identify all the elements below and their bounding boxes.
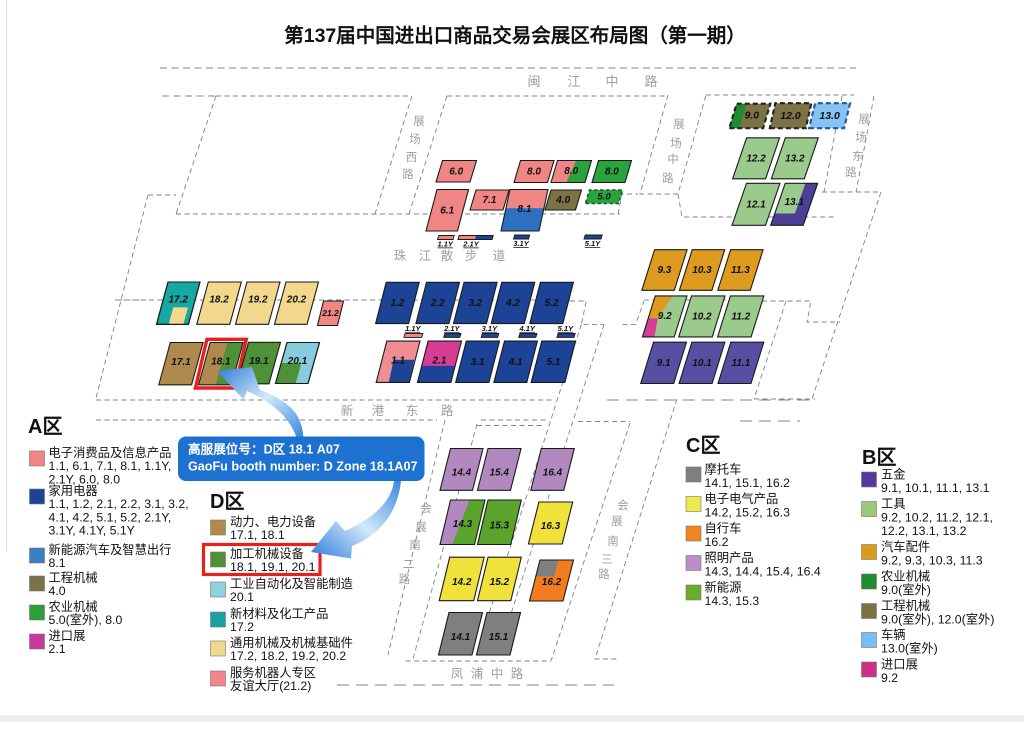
svg-text:1.1, 1.2, 2.1, 2.2, 3.1, 3.2,: 1.1, 1.2, 2.1, 2.2, 3.1, 3.2, [49, 497, 189, 511]
svg-text:13.1: 13.1 [784, 197, 804, 208]
svg-text:路: 路 [598, 567, 610, 581]
svg-text:路: 路 [845, 165, 857, 179]
svg-text:动力、电力设备: 动力、电力设备 [230, 515, 316, 529]
svg-text:汽车配件: 汽车配件 [881, 539, 930, 554]
svg-text:10.2: 10.2 [692, 312, 712, 323]
svg-text:照明产品: 照明产品 [705, 551, 754, 565]
svg-text:B区: B区 [862, 447, 896, 469]
svg-text:15.2: 15.2 [490, 577, 510, 588]
svg-text:4.0: 4.0 [49, 584, 66, 598]
svg-text:南: 南 [409, 538, 421, 552]
svg-text:9.0(室外), 12.0(室外): 9.0(室外), 12.0(室外) [881, 611, 994, 626]
svg-text:7.1: 7.1 [483, 195, 497, 206]
svg-text:6.0: 6.0 [449, 166, 463, 177]
svg-text:18.1: 18.1 [211, 356, 231, 367]
svg-text:9.1, 10.1, 11.1, 13.1: 9.1, 10.1, 11.1, 13.1 [881, 481, 990, 495]
svg-text:17.2, 18.2, 19.2, 20.2: 17.2, 18.2, 19.2, 20.2 [230, 649, 346, 663]
svg-text:14.1, 15.1, 16.2: 14.1, 15.1, 16.2 [705, 476, 791, 490]
svg-text:东: 东 [406, 404, 419, 418]
svg-text:服务机器人专区: 服务机器人专区 [230, 665, 316, 680]
svg-text:车辆: 车辆 [881, 627, 906, 642]
svg-text:路: 路 [662, 171, 674, 185]
svg-text:C区: C区 [686, 435, 720, 457]
svg-text:农业机械: 农业机械 [49, 599, 98, 614]
svg-text:新材料及化工产品: 新材料及化工产品 [230, 606, 328, 621]
svg-text:16.2: 16.2 [542, 577, 562, 588]
svg-text:2.1: 2.1 [432, 355, 447, 366]
svg-text:5.2: 5.2 [545, 298, 559, 309]
svg-text:通用机械及机械基础件: 通用机械及机械基础件 [230, 635, 353, 650]
svg-text:工业自动化及智能制造: 工业自动化及智能制造 [230, 576, 353, 591]
svg-text:10.1: 10.1 [692, 358, 712, 369]
svg-text:5.1Y: 5.1Y [558, 324, 574, 333]
svg-text:20.1: 20.1 [287, 356, 308, 367]
svg-text:12.1: 12.1 [746, 199, 766, 210]
svg-text:西: 西 [406, 152, 418, 164]
svg-text:16.3: 16.3 [541, 521, 561, 532]
svg-text:14.2, 15.2, 16.3: 14.2, 15.2, 16.3 [705, 505, 791, 519]
svg-text:会: 会 [420, 502, 432, 515]
svg-text:16.4: 16.4 [543, 468, 563, 479]
svg-text:2.1: 2.1 [49, 642, 66, 656]
svg-text:3.1Y: 3.1Y [513, 239, 529, 248]
svg-text:20.1: 20.1 [230, 590, 254, 604]
svg-text:场: 场 [409, 132, 421, 146]
svg-text:高服展位号：D区 18.1 A07: 高服展位号：D区 18.1 A07 [188, 442, 340, 457]
svg-text:A区: A区 [28, 416, 62, 438]
svg-text:电子消费品及信息产品: 电子消费品及信息产品 [49, 445, 172, 460]
svg-text:15.3: 15.3 [490, 520, 510, 531]
svg-text:五金: 五金 [881, 467, 906, 482]
svg-text:路: 路 [511, 666, 524, 681]
svg-text:4.1, 4.2, 5.1, 5.2, 2.1Y,: 4.1, 4.2, 5.1, 5.2, 2.1Y, [49, 510, 172, 524]
svg-text:11.1: 11.1 [732, 358, 751, 369]
svg-text:9.2: 9.2 [881, 671, 898, 685]
svg-text:4.1Y: 4.1Y [518, 324, 535, 333]
svg-text:中: 中 [605, 74, 618, 89]
svg-text:江: 江 [567, 74, 580, 89]
svg-text:9.2, 10.2, 11.2, 12.1,: 9.2, 10.2, 11.2, 12.1, [881, 510, 993, 524]
svg-text:13.2: 13.2 [785, 153, 805, 164]
svg-text:新能源汽车及智慧出行: 新能源汽车及智慧出行 [49, 542, 172, 557]
svg-text:中: 中 [667, 153, 679, 166]
svg-text:2.1Y: 2.1Y [462, 240, 479, 249]
svg-text:9.2, 9.3, 10.3, 11.3: 9.2, 9.3, 10.3, 11.3 [881, 553, 983, 567]
svg-text:14.3, 14.4, 15.4, 16.4: 14.3, 14.4, 15.4, 16.4 [705, 564, 821, 578]
svg-text:12.0: 12.0 [780, 110, 801, 122]
svg-text:二: 二 [403, 559, 415, 571]
svg-text:加工机械设备: 加工机械设备 [230, 546, 304, 561]
svg-text:11.2: 11.2 [731, 312, 750, 323]
svg-text:9.3: 9.3 [657, 265, 671, 276]
svg-text:进口展: 进口展 [49, 629, 86, 643]
svg-text:19.2: 19.2 [248, 294, 268, 305]
svg-text:闽: 闽 [527, 74, 540, 89]
svg-text:21.2: 21.2 [321, 308, 339, 318]
svg-text:2.1Y: 2.1Y [443, 324, 460, 333]
svg-text:14.1: 14.1 [451, 632, 471, 643]
svg-text:步: 步 [465, 249, 478, 263]
svg-text:14.3, 15.3: 14.3, 15.3 [705, 594, 760, 608]
svg-text:展: 展 [611, 515, 623, 528]
svg-text:会: 会 [617, 499, 629, 512]
svg-text:中: 中 [491, 666, 504, 681]
svg-text:3.1Y: 3.1Y [482, 324, 498, 333]
svg-text:8.1: 8.1 [49, 556, 66, 570]
svg-text:工程机械: 工程机械 [49, 570, 98, 585]
svg-text:港: 港 [372, 404, 385, 418]
svg-text:6.1: 6.1 [440, 205, 454, 216]
svg-text:路: 路 [644, 74, 657, 89]
svg-text:12.2, 13.1, 13.2: 12.2, 13.1, 13.2 [881, 524, 967, 538]
svg-text:1.1, 6.1, 7.1, 8.1, 1.1Y,: 1.1, 6.1, 7.1, 8.1, 1.1Y, [49, 459, 172, 473]
svg-text:展: 展 [858, 113, 870, 126]
svg-text:摩托车: 摩托车 [705, 462, 742, 477]
svg-text:13.0: 13.0 [819, 110, 840, 122]
svg-text:5.1Y: 5.1Y [585, 239, 601, 248]
svg-text:南: 南 [607, 534, 619, 548]
svg-text:16.2: 16.2 [705, 535, 729, 549]
svg-text:10.3: 10.3 [692, 265, 712, 276]
svg-text:1.1: 1.1 [391, 355, 405, 366]
svg-text:道: 道 [493, 249, 506, 263]
svg-text:凤: 凤 [451, 667, 464, 681]
svg-text:4.2: 4.2 [505, 298, 520, 309]
svg-text:农业机械: 农业机械 [881, 569, 930, 584]
svg-text:电子电气产品: 电子电气产品 [705, 491, 779, 506]
svg-text:工具: 工具 [881, 497, 906, 511]
svg-text:5.0(室外), 8.0: 5.0(室外), 8.0 [49, 612, 123, 627]
svg-text:三: 三 [601, 554, 613, 566]
svg-text:14.3: 14.3 [453, 519, 473, 530]
svg-text:9.2: 9.2 [658, 311, 672, 322]
svg-text:8.0: 8.0 [527, 167, 541, 178]
svg-text:17.1, 18.1: 17.1, 18.1 [230, 528, 285, 542]
svg-text:4.1: 4.1 [508, 357, 523, 368]
svg-text:8.0: 8.0 [605, 167, 619, 178]
svg-text:GaoFu booth number: D Zone 18.: GaoFu booth number: D Zone 18.1A07 [188, 460, 418, 474]
svg-text:14.2: 14.2 [452, 577, 472, 588]
svg-text:第137届中国进出口商品交易会展区布局图（第一期）: 第137届中国进出口商品交易会展区布局图（第一期） [284, 24, 746, 47]
svg-text:展: 展 [415, 521, 427, 534]
svg-text:19.1: 19.1 [249, 356, 269, 367]
svg-text:工程机械: 工程机械 [881, 598, 930, 613]
svg-text:场: 场 [855, 130, 867, 144]
svg-text:9.0: 9.0 [744, 110, 759, 122]
svg-text:5.1: 5.1 [546, 357, 560, 368]
svg-text:17.2: 17.2 [168, 294, 188, 305]
svg-text:D区: D区 [210, 491, 244, 513]
svg-text:4.0: 4.0 [555, 195, 570, 206]
svg-text:1.1Y: 1.1Y [405, 324, 421, 333]
svg-text:路: 路 [399, 572, 411, 586]
svg-text:17.1: 17.1 [171, 357, 191, 368]
svg-text:3.1: 3.1 [471, 357, 485, 368]
svg-text:散: 散 [441, 248, 454, 263]
svg-text:1.2: 1.2 [390, 298, 404, 309]
svg-text:18.2: 18.2 [209, 294, 229, 305]
svg-text:珠: 珠 [394, 249, 407, 263]
svg-text:新: 新 [341, 403, 354, 418]
svg-text:自行车: 自行车 [705, 521, 742, 536]
svg-text:1.1Y: 1.1Y [437, 240, 453, 249]
svg-text:展: 展 [413, 115, 425, 128]
svg-text:路: 路 [402, 167, 414, 181]
svg-text:2.2: 2.2 [430, 298, 445, 309]
svg-text:9.0(室外): 9.0(室外) [881, 582, 931, 597]
svg-text:13.0(室外): 13.0(室外) [881, 640, 938, 655]
svg-text:东: 东 [852, 150, 864, 163]
svg-text:浦: 浦 [471, 667, 484, 681]
svg-text:12.2: 12.2 [746, 153, 766, 164]
svg-text:友谊大厅(21.2): 友谊大厅(21.2) [230, 678, 311, 693]
svg-text:11.3: 11.3 [731, 265, 750, 276]
svg-text:18.1, 19.1, 20.1: 18.1, 19.1, 20.1 [230, 560, 316, 574]
svg-text:15.4: 15.4 [489, 468, 509, 479]
svg-text:家用电器: 家用电器 [49, 483, 98, 498]
svg-text:进口展: 进口展 [881, 658, 918, 672]
svg-text:江: 江 [419, 249, 432, 263]
svg-text:5.0: 5.0 [597, 192, 611, 203]
svg-text:场: 场 [670, 136, 682, 150]
svg-text:3.1Y, 4.1Y, 5.1Y: 3.1Y, 4.1Y, 5.1Y [49, 524, 135, 538]
svg-text:14.4: 14.4 [452, 468, 472, 479]
svg-text:8.0: 8.0 [564, 166, 578, 177]
svg-text:展: 展 [673, 118, 685, 131]
svg-text:8.1: 8.1 [518, 204, 532, 215]
svg-text:15.1: 15.1 [489, 632, 509, 643]
svg-text:3.2: 3.2 [468, 298, 482, 309]
svg-text:路: 路 [441, 403, 454, 418]
svg-text:20.2: 20.2 [286, 294, 307, 305]
svg-text:新能源: 新能源 [705, 580, 742, 595]
svg-text:9.1: 9.1 [657, 358, 671, 369]
svg-text:17.2: 17.2 [230, 620, 254, 634]
